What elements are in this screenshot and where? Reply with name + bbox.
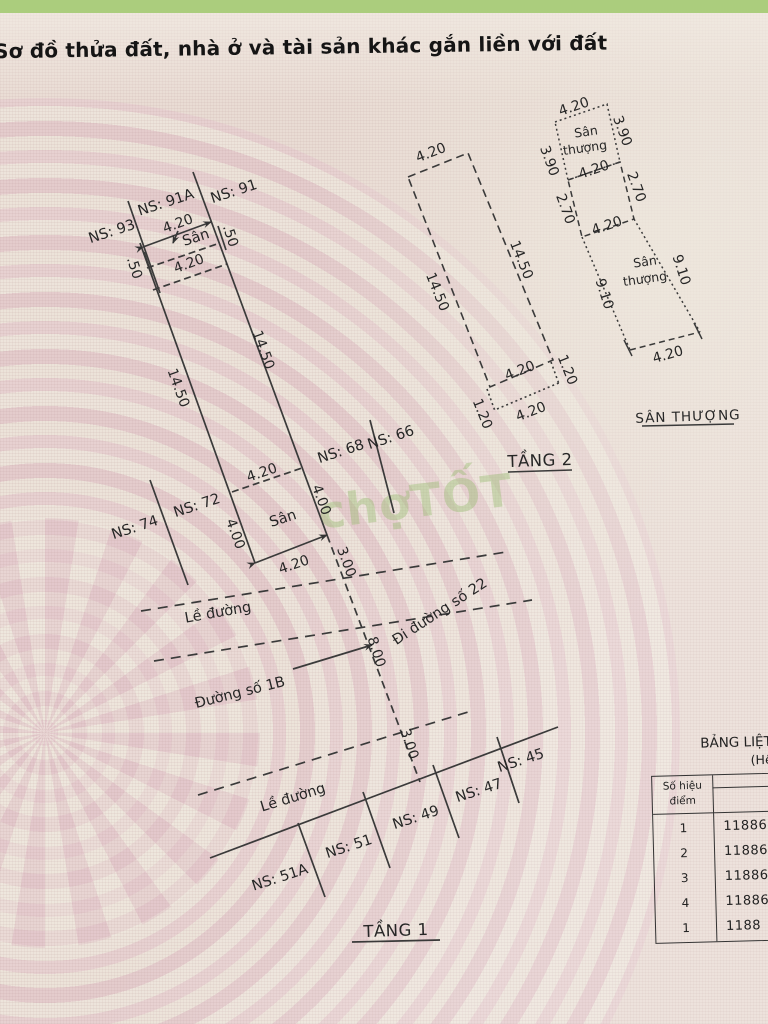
plot-label-ns49: NS: 49 [391,803,442,833]
ns49-tick [363,792,390,868]
ns51-tick [298,823,325,897]
table-row-value: 11886 [724,843,768,859]
table-row-value: 11886 [725,868,768,884]
dim-left-1450: 14.50 [164,366,193,409]
dim-road-800: 8.00 [364,635,389,670]
column-header-point: Số hiệu điểm [652,778,713,810]
dim-rt-mid-top-420: 4.20 [577,157,612,182]
column-header-x: X(m [719,786,768,807]
dim-left-050: .50 [123,255,145,281]
table-row-no: 2 [654,845,714,861]
street-centerline-arrow [293,645,372,669]
rooftop-lower-label-1: Sân [632,252,657,270]
street-name-label: Đường số 1B [193,673,287,712]
table-row-no: 1 [653,820,713,836]
dim-rt-mid-bottom-420: 4.20 [590,213,625,238]
rooftop-title: SÂN THƯỢNG [635,405,741,427]
floor2-labels: 4.20 14.50 14.50 1.20 4.20 1.20 4.20 TẦN… [414,140,581,471]
table-row-no: 3 [655,870,715,886]
dim-f2-right-1450: 14.50 [506,238,536,281]
dim-rt-left-390: 3.90 [536,144,562,179]
table-row-value: 11886 [725,893,768,909]
dim-rt-bottom-420: 4.20 [651,343,685,367]
south-frontage-line [210,727,558,858]
rooftop-br-tick [694,323,702,339]
dim-lowersan-left-400: 4.00 [222,517,248,552]
dim-lowersan-right-400: 4.00 [308,483,334,518]
to-street-22-label: Đi đường số 22 [389,575,490,649]
certificate-paper: Sơ đồ thửa đất, nhà ở và tài sản khác gắ… [0,13,768,1024]
san-lower-label: Sân [268,507,299,531]
plot-label-ns74: NS: 74 [110,513,161,543]
plot-label-ns68: NS: 68 [316,437,367,467]
table-row-value: 1188 [726,918,761,934]
dim-f2-top-420: 4.20 [414,140,449,166]
dim-lowersan-top-420: 4.20 [245,460,280,485]
rooftop-bl-tick [624,340,632,356]
plot-label-ns72: NS: 72 [172,491,223,521]
plot-label-ns51a: NS: 51A [250,861,310,894]
dim-south-sidewalk-300: 3.00 [397,727,422,762]
ns74-boundary-line [150,480,188,585]
coordinate-table: BẢNG LIỆT (Hệ Số hiệu điểm X(m 1 11886 2… [648,729,768,950]
dim-f2-dotted-420: 4.20 [514,399,549,425]
dim-rt-left-910: 9.10 [592,277,617,312]
plot-label-ns45: NS: 45 [496,746,547,776]
table-row-no: 4 [655,895,715,911]
table-inner-top-rule [712,783,768,788]
dim-san-420: 4.20 [172,251,207,277]
dim-rt-mid-left-270: 2.70 [552,192,578,227]
dim-lowersan-bottom-420: 4.20 [277,552,312,577]
plot-label-ns93: NS: 93 [87,217,138,247]
plot-label-ns91: NS: 91 [209,177,260,207]
dim-right-050: .50 [219,223,241,249]
table-row-no: 1 [656,920,716,936]
ns47-tick [433,765,459,838]
photo-of-land-certificate: { "title": "Sơ đồ thửa đất, nhà ở và tài… [0,0,768,1024]
table-row-value: 11886 [723,818,767,834]
floor1-labels: NS: 91A NS: 91 NS: 93 4.20 Sân .50 .50 4… [87,177,547,941]
floor2-title: TẦNG 2 [506,448,573,471]
plot-label-ns47: NS: 47 [454,776,505,806]
coordinate-table-box: Số hiệu điểm X(m 1 11886 2 11886 3 11886… [651,770,768,943]
dim-rt-mid-right-270: 2.70 [623,170,649,205]
dim-f2-bl-120: 1.20 [469,397,496,432]
south-curb-dashed [198,712,468,795]
coordinate-table-title: BẢNG LIỆT [700,734,768,752]
dim-f2-bottom-420: 4.20 [503,358,538,384]
rooftop-lower-label-2: thượng [622,268,668,289]
floor1-title: TẦNG 1 [362,918,429,941]
coordinate-table-subtitle: (Hệ [750,752,768,768]
dim-rt-right-910: 9.10 [669,253,694,288]
rooftop-upper-label-2: thượng [562,137,608,158]
dim-right-1450: 14.50 [249,328,278,371]
south-curb-label: Lề đường [258,780,327,816]
plot-label-ns66: NS: 66 [366,423,417,453]
dim-rt-right-390: 3.90 [609,114,635,149]
plot-label-ns51: NS: 51 [324,832,375,862]
dim-rt-upper-420: 4.20 [557,94,592,119]
